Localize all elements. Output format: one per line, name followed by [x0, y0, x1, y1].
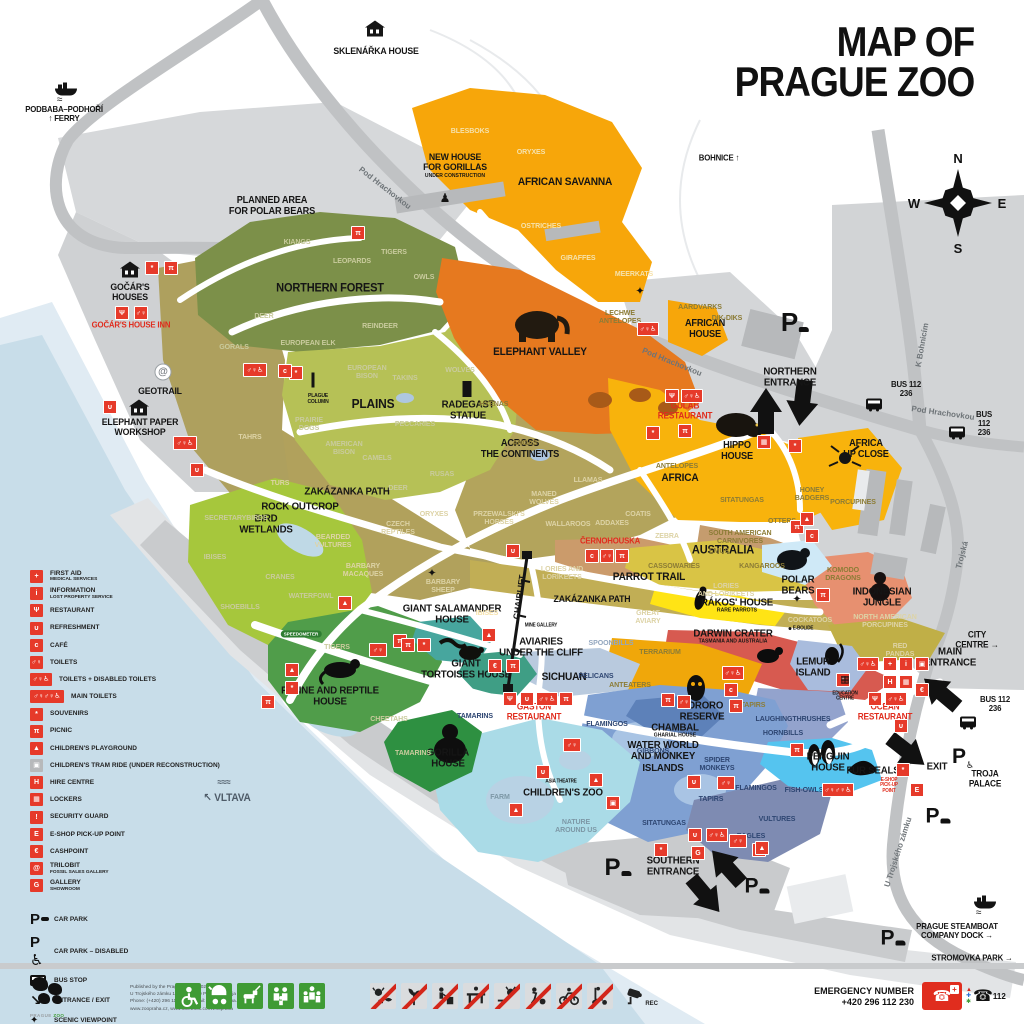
zone-label: ASIA THEATRE [545, 779, 576, 784]
animal-label: NORTH AMERICANPORCUPINES [853, 613, 916, 630]
legend-item-restaurant: ΨRESTAURANT [30, 604, 220, 617]
service-cafe-icon: c [724, 683, 738, 697]
legend-item-gallery: GGALLERYSHOWROOM [30, 879, 220, 892]
no-littering-icon [432, 983, 458, 1009]
road-label: CHAIRLIFT [511, 574, 527, 620]
animal-label: EUROPEANBISON [347, 364, 386, 381]
animal-label: REINDEER [362, 322, 398, 330]
childrens-playground-icon: ▲ [30, 742, 43, 755]
zone-label: GOČÁR'SHOUSES [110, 283, 149, 304]
service-wc-icon: ♂♀ [563, 738, 581, 752]
service-refr-icon: ∪ [190, 463, 204, 477]
red-label: E-SHOPPICK-UPPOINT [880, 778, 898, 794]
service-rest-icon: Ψ [665, 389, 679, 403]
no-plant-picking-icon [401, 983, 427, 1009]
service-picnic-icon: π [816, 588, 830, 602]
service-wcd-icon: ♂♀♿ [722, 666, 744, 680]
family-icon [268, 983, 294, 1009]
no-feeding-icon [370, 983, 396, 1009]
animal-label: WOLVES [445, 366, 474, 374]
service-wc-icon: ♂♀ [729, 834, 747, 848]
red-label: GOČÁR'S HOUSE INN [92, 320, 171, 329]
service-info-icon: i [899, 657, 913, 671]
animal-label: WATERFOWL [289, 592, 334, 600]
animal-label: HYENAS [480, 400, 509, 408]
service-picnic-icon: π [506, 659, 520, 673]
animal-label: ADDAXES [595, 519, 629, 527]
service-play-icon: ▲ [800, 512, 814, 526]
service-souv-icon: * [417, 638, 431, 652]
animal-label: AMERICANBISON [325, 440, 362, 457]
legend: +FIRST AIDMEDICAL SERVICESiINFORMATIONLO… [30, 570, 220, 1024]
zone-label: GORILLAHOUSE [427, 748, 469, 771]
elephant-paper-workshop-icon [131, 407, 147, 416]
animal-label: SOUTH AMERICANCARNIVORES [708, 529, 771, 546]
animal-label: KIANGS [284, 238, 311, 246]
cafe-icon: c [30, 639, 43, 652]
cctv-rec-icon: REC [624, 983, 658, 1009]
service-refr-icon: ∪ [536, 765, 550, 779]
legend-item-picnic: πPICNIC [30, 725, 220, 738]
zone-label: PLAGUECOLUMN [307, 394, 328, 406]
education-centre-icon: ▦ [840, 675, 849, 686]
animal-label: LLAMAS [574, 476, 603, 484]
legend-item-refreshment: ∪REFRESHMENT [30, 622, 220, 635]
zone-label: E-BOLIDE [793, 626, 814, 631]
map-title: MAP OF PRAGUE ZOO [734, 22, 974, 103]
prague-zoo-map: N E S W NORTHERN FORESTPLAINSAFRICAN SAV… [0, 0, 1024, 1024]
service-picnic-icon: π [401, 638, 415, 652]
bus-stop-label: BUS 112236 [891, 380, 921, 398]
animal-label: ORYXES [420, 510, 449, 518]
animal-label: TAPIRS [741, 701, 766, 709]
service-lock-icon: ▦ [757, 435, 771, 449]
group-icon [299, 983, 325, 1009]
animal-label: KOMODODRAGONS [825, 566, 860, 583]
animal-label: CAMELS [362, 454, 391, 462]
service-cash-icon: € [488, 659, 502, 673]
animal-label: NATUREAROUND US [555, 818, 597, 835]
legend-item-toilets: ♂♀TOILETS [30, 656, 220, 669]
animal-label: TERRARIUM [639, 648, 680, 656]
animal-label: ZEBRA [655, 532, 679, 540]
zone-label: AFRICA [661, 473, 698, 485]
animal-label: CZECHREPTILES [381, 520, 415, 537]
animal-label: ANTELOPES [656, 462, 698, 470]
service-tram-icon: ▣ [915, 657, 929, 671]
service-hire-icon: H [883, 675, 897, 689]
legend-item-car-park-disabled: P♿CAR PARK – DISABLED [30, 934, 220, 969]
cashpoint-icon: € [30, 845, 43, 858]
road-label: Pod Hrachovkou [641, 346, 703, 378]
service-rest-icon: Ψ [503, 692, 517, 706]
zone-label: NEW HOUSEFOR GORILLASUNDER CONSTRUCTION [423, 153, 487, 179]
animal-label: PECCARIES [395, 420, 435, 428]
under-construction-icon: ♟ [440, 191, 451, 205]
zone-label: NORTHERNENTRANCE [763, 367, 816, 390]
red-label: GULABRESTAURANT [658, 401, 713, 420]
zone-label: ZAKÁZANKA PATH [304, 486, 389, 497]
animal-label: FLAMINGOS [586, 720, 627, 728]
zone-label: AFRICANHOUSE [685, 319, 725, 341]
service-souv-icon: * [646, 426, 660, 440]
zone-label: ELEPHANT PAPERWORKSHOP [102, 418, 178, 439]
zone-label: AVIARIESUNDER THE CLIFF [499, 637, 583, 660]
animal-label: PORCUPINES [830, 498, 876, 506]
zone-label: ELEPHANT VALLEY [493, 347, 587, 359]
animal-label: SECRETARYBIRDS [204, 514, 267, 522]
animal-label: TURS [271, 479, 290, 487]
service-picnic-icon: π [559, 692, 573, 706]
road-label: Pod Hrachovkou [357, 165, 413, 211]
animal-label: EUROPEAN ELK [281, 339, 336, 347]
service-play-icon: ▲ [482, 628, 496, 642]
service-mwc-icon: ♂♀♂♀♿ [822, 783, 854, 797]
main-toilets-icon: ♂♀♂♀♿ [30, 690, 64, 703]
animal-label: SITATUNGAS [642, 819, 686, 827]
service-souv-icon: * [285, 681, 299, 695]
animal-label: TAPIRS [699, 795, 724, 803]
gocars-houses-icon [122, 269, 138, 278]
zone-label: NORTHERN FOREST [276, 282, 384, 295]
refreshment-icon: ∪ [30, 622, 43, 635]
e-shop-pick-up-point-icon: E [30, 828, 43, 841]
speedometer-label: SPEEDOMETER [281, 631, 322, 638]
zone-label: PLAINS [352, 397, 395, 411]
service-lock-icon: ▦ [899, 675, 913, 689]
service-cafe-icon: c [585, 549, 599, 563]
animal-label: OWLS [414, 273, 435, 281]
service-eshop-icon: E [910, 783, 924, 797]
zone-label: INDONESIANJUNGLE [853, 587, 912, 610]
road-label: K Bohnicím [914, 322, 931, 367]
animal-label: BEARDEDVULTURES [315, 533, 352, 550]
no-teasing-animals-icon [494, 983, 520, 1009]
service-picnic-icon: π [351, 226, 365, 240]
pram-icon [206, 983, 232, 1009]
animal-label: VULTURES [759, 815, 796, 823]
legend-item-e-shop-pick-up-point: EE-SHOP PICK-UP POINT [30, 828, 220, 841]
service-cafe-icon: c [278, 364, 292, 378]
animal-label: FISH-OWLS [785, 786, 824, 794]
animal-label: DIK-DIKS [712, 314, 743, 322]
zone-label: DARWIN CRATERTASMANIA AND AUSTRALIA [693, 628, 772, 645]
emergency-phone-icon: ☎+ [922, 982, 962, 1010]
animal-label: COATIS [625, 510, 651, 518]
bus-stop-label: BUS112236 [976, 410, 992, 438]
animal-label: COCKATOOS [788, 616, 832, 624]
animal-label: SITATUNGAS [720, 496, 764, 504]
legend-item-security-guard: !SECURITY GUARD [30, 811, 220, 824]
red-label: ČERNOHOUSKA [580, 536, 640, 545]
animal-label: LEOPARDS [333, 257, 371, 265]
animal-label: CRANES [265, 573, 294, 581]
zone-label: ROCK OUTCROP [261, 501, 338, 512]
zone-label: CITYCENTRE → [955, 630, 998, 649]
service-refr-icon: ∪ [520, 692, 534, 706]
zone-label: FUR SEALS [846, 765, 899, 776]
geotrail-ammonite-icon: @ [155, 364, 172, 381]
no-barrier-crossing-icon [463, 983, 489, 1009]
service-cafe-icon: c [805, 529, 819, 543]
legend-item-main-toilets: ♂♀♂♀♿MAIN TOILETS [30, 690, 220, 703]
car-park-icon: P [781, 309, 809, 335]
animal-label: TAMARINS [457, 712, 493, 720]
animal-label: SHOEBILLS [220, 603, 260, 611]
scenic-viewpoint-icon: ✦ [427, 567, 436, 580]
zone-label: PENGUINHOUSE [807, 752, 850, 775]
plague-column-icon [312, 373, 315, 388]
animal-label: PELICANS [579, 672, 614, 680]
legend-item-first-aid: +FIRST AIDMEDICAL SERVICES [30, 570, 220, 583]
toilets-disabled-icon: ♂♀♿ [30, 673, 52, 686]
map-title-line1: MAP OF [734, 22, 974, 62]
souvenirs-icon: * [30, 708, 43, 721]
service-refr-icon: ∪ [687, 775, 701, 789]
zone-label: BOHNICE ↑ [699, 153, 739, 162]
e-bolide-icon: ● [788, 626, 792, 633]
trilobit-icon: @ [30, 862, 43, 875]
security-guard-icon: ! [30, 811, 43, 824]
first-aid-icon: + [30, 570, 43, 583]
animal-label: CHEETAHS [370, 715, 408, 723]
hire-centre-icon: H [30, 776, 43, 789]
car-park-icon: P [744, 876, 769, 897]
zone-label: GEOTRAIL [138, 387, 182, 397]
service-wcd-icon: ♂♀♿ [885, 692, 907, 706]
service-fa-icon: + [883, 657, 897, 671]
service-wcd-icon: ♂♀♿ [857, 657, 879, 671]
zone-label: AFRICAUP CLOSE [843, 439, 888, 461]
animal-label: LORIESAND LORIKEETS [698, 582, 754, 599]
bus-stop-label: BUS 112236 [980, 695, 1010, 713]
service-wc-icon: ♂♀ [677, 695, 691, 709]
service-wcd-icon: ♂♀♿ [243, 363, 267, 377]
animal-label: LAUGHINGTHRUSHES [756, 715, 831, 723]
animal-label: TAMARINS [395, 749, 431, 757]
legend-item-trilobit: @TRILOBITFOSSIL SALES GALLERY [30, 862, 220, 875]
service-play-icon: ▲ [589, 773, 603, 787]
service-cash-icon: € [915, 683, 929, 697]
zone-label: TROJAPALACE [969, 769, 1001, 788]
animal-label: KANGAROOS [739, 562, 785, 570]
service-wc-icon: ♂♀ [134, 306, 148, 320]
service-souv-icon: * [145, 261, 159, 275]
animal-label: MEERKATS [615, 270, 653, 278]
animal-label: ANTEATERS [609, 681, 651, 689]
animal-label: SPIDERMONKEYS [699, 756, 734, 773]
animal-label: IBISES [204, 553, 227, 561]
service-play-icon: ▲ [338, 596, 352, 610]
animal-label: GIRAFFES [561, 254, 596, 262]
animal-label: RUSAS [430, 470, 454, 478]
animal-label: LECHWEANTELOPES [599, 309, 641, 326]
emergency-number: EMERGENCY NUMBER+420 296 112 230 [814, 986, 914, 1008]
animal-label: AARDVARKS [678, 303, 722, 311]
zone-label: MINE GALLERY [525, 623, 557, 628]
animal-label: TIGERS [381, 248, 407, 256]
animal-label: HORNBILLS [763, 729, 803, 737]
animal-label: DEER [254, 312, 273, 320]
road-label: Pod Hrachovkou [911, 404, 975, 422]
lockers-icon: ▦ [30, 793, 43, 806]
service-gal-icon: G [691, 846, 705, 860]
childrens-tram-ride-icon: ▣ [30, 759, 43, 772]
service-play-icon: ▲ [755, 841, 769, 855]
ferry-icon [55, 89, 77, 96]
animal-label: IBISES [476, 609, 499, 617]
scenic-viewpoint-icon: ✦ [792, 593, 801, 606]
animal-label: BARBARYMACAQUES [343, 562, 383, 579]
legend-item-childrens-tram-ride: ▣CHILDREN'S TRAM RIDE (UNDER RECONSTRUCT… [30, 759, 220, 772]
zone-label: EDUCATIONCENTRE [832, 692, 857, 703]
service-wc-icon: ♂♀ [600, 549, 614, 563]
legend-item-souvenirs: *SOUVENIRS [30, 708, 220, 721]
footer: PRAGUE ZOOPublished by the Prague Zoo © … [0, 975, 1024, 1024]
service-refr-icon: ∪ [688, 828, 702, 842]
wheelchair-access-icon [175, 983, 201, 1009]
service-rest-icon: Ψ [115, 306, 129, 320]
car-park-icon: P [925, 806, 950, 827]
legend-item-cafe: cCAFÉ [30, 639, 220, 652]
service-picnic-icon: π [790, 743, 804, 757]
zone-label: EXIT [927, 761, 948, 772]
service-play-icon: ▲ [509, 803, 523, 817]
car-park-icon: P [604, 856, 631, 880]
no-scooter-icon [587, 983, 613, 1009]
zone-label: AFRICAN SAVANNA [518, 177, 612, 189]
animal-label: WALLAROOS [546, 520, 591, 528]
service-wcd-icon: ♂♀♿ [173, 436, 197, 450]
car-park-icon: P [30, 911, 50, 928]
legend-item-hire-centre: HHIRE CENTRE [30, 776, 220, 789]
service-wcd-icon: ♂♀♿ [706, 828, 728, 842]
zone-label: MAINENTRANCE [924, 647, 976, 670]
zone-label: CHAMBALGHARIAL HOUSE [651, 722, 699, 739]
service-souv-icon: * [788, 439, 802, 453]
zone-label: SKLENÁŘKA HOUSE [333, 47, 418, 57]
legend-item-car-park: PCAR PARK [30, 911, 220, 928]
zone-label: PRAGUE STEAMBOATCOMPANY DOCK → [916, 922, 998, 940]
road-label: Trojská [954, 540, 970, 569]
car-park-disabled-icon: P♿ [30, 934, 50, 969]
service-picnic-icon: π [661, 693, 675, 707]
service-refr-icon: ∪ [894, 719, 908, 733]
legend-item-childrens-playground: ▲CHILDREN'S PLAYGROUND [30, 742, 220, 755]
animal-label: SPOONBILLS [589, 639, 634, 647]
service-picnic-icon: π [615, 549, 629, 563]
legend-item-toilets-disabled: ♂♀♿TOILETS + DISABLED TOILETS [30, 673, 220, 686]
animal-label: OSTRICHES [521, 222, 561, 230]
zone-label: RÁKOS' HOUSERARE PARROTS [701, 597, 773, 614]
service-souv-icon: * [896, 763, 910, 777]
sos-112-block: ▲✚✱☎112 [966, 982, 1006, 1010]
animal-label: ORYXES [517, 148, 546, 156]
information-icon: i [30, 587, 43, 600]
service-wc-icon: ♂♀ [717, 776, 735, 790]
road-label: U Trojského zámku [882, 816, 913, 888]
service-tram-icon: ▣ [606, 796, 620, 810]
legend-item-cashpoint: €CASHPOINT [30, 845, 220, 858]
bus-stop-icon [949, 427, 965, 438]
zone-label: PARROT TRAIL [613, 572, 685, 584]
service-picnic-icon: π [164, 261, 178, 275]
car-park-disabled-icon: P♿ [952, 746, 974, 770]
animal-label: FARM [490, 793, 510, 801]
service-wcd-icon: ♂♀♿ [681, 389, 703, 403]
zone-label: PLANNED AREAFOR POLAR BEARS [229, 196, 315, 218]
service-play-icon: ▲ [285, 663, 299, 677]
picnic-icon: π [30, 725, 43, 738]
bus-stop-icon [866, 399, 882, 410]
animal-label: HONEYBADGERS [795, 486, 830, 503]
service-rest-icon: Ψ [868, 692, 882, 706]
service-wc-icon: ♂♀ [369, 643, 387, 657]
steamboat-icon [974, 902, 996, 909]
service-souv-icon: * [654, 843, 668, 857]
restaurant-icon: Ψ [30, 604, 43, 617]
animal-label: FLAMINGOS [735, 784, 776, 792]
prague-zoo-logo: PRAGUE ZOO [28, 977, 68, 1011]
animal-label: GORALS [219, 343, 249, 351]
animal-label: GREATAVIARY [635, 609, 660, 626]
legend-item-lockers: ▦LOCKERS [30, 793, 220, 806]
car-park-icon: P [880, 928, 905, 949]
bus-stop-icon [960, 717, 976, 728]
toilets-icon: ♂♀ [30, 656, 43, 669]
animal-label: TIGERS [324, 643, 350, 651]
service-refr-icon: ∪ [103, 400, 117, 414]
animal-label: PRZEWALSKI'SHORSES [473, 510, 524, 527]
zone-label: PODBABA–PODHOŘÍ↑ FERRY [25, 105, 103, 123]
animal-label: LORIES ANDLORIKEETS [541, 565, 583, 582]
animal-label: PRAIRIEDOGS [295, 416, 323, 433]
animal-label: ANOAS [513, 439, 538, 447]
zone-label: LEMURISLAND [796, 657, 831, 680]
service-wcd-icon: ♂♀♿ [536, 692, 558, 706]
animal-label: TAKINS [392, 374, 417, 382]
animal-label: EMUS [709, 547, 729, 555]
service-picnic-icon: π [678, 424, 692, 438]
no-cycling-icon [556, 983, 582, 1009]
scenic-viewpoint-icon: ✦ [635, 285, 644, 298]
animal-label: TAHRS [238, 433, 261, 441]
zone-label: CHILDREN'S ZOO [523, 787, 603, 798]
animal-label: CASSOWARIES [648, 562, 700, 570]
service-picnic-icon: π [261, 695, 275, 709]
animal-label: BLESBOKS [451, 127, 489, 135]
dog-on-leash-icon [237, 983, 263, 1009]
service-refr-icon: ∪ [506, 544, 520, 558]
zone-label: HIPPOHOUSE [721, 441, 753, 463]
animal-label: DEER [388, 484, 407, 492]
zone-label: ZAKÁZANKA PATH [554, 595, 631, 605]
animal-label: MANEDWOLVES [529, 490, 558, 507]
radegast-statue-icon [463, 381, 472, 397]
sklenarka-house-icon [367, 28, 383, 37]
service-wcd-icon: ♂♀♿ [637, 322, 659, 336]
animal-label: GIBBONS [637, 747, 669, 755]
zone-label: STROMOVKA PARK → [931, 953, 1012, 962]
animal-label: BARBARYSHEEP [426, 578, 460, 595]
map-title-line2: PRAGUE ZOO [734, 62, 974, 102]
no-ball-games-icon [525, 983, 551, 1009]
gallery-icon: G [30, 879, 43, 892]
animal-label: REDPANDAS [886, 642, 915, 659]
legend-item-information: iINFORMATIONLOST PROPERTY SERVICE [30, 587, 220, 600]
service-picnic-icon: π [729, 699, 743, 713]
